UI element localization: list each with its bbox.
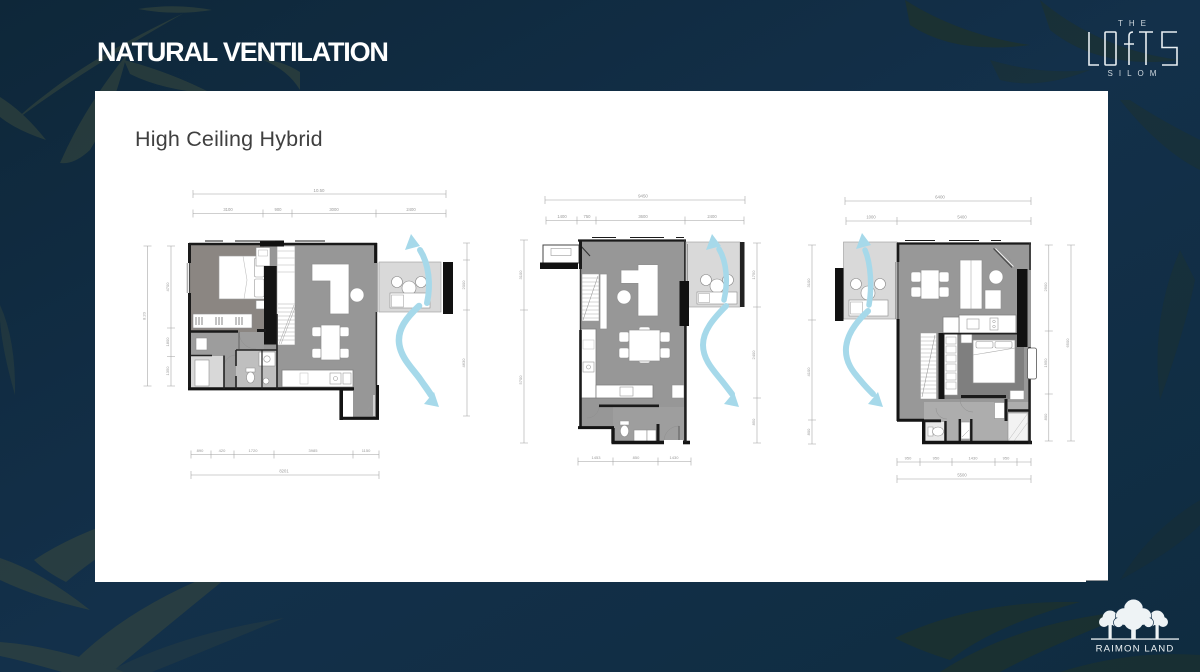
svg-text:2000: 2000 bbox=[461, 280, 466, 290]
svg-text:890: 890 bbox=[197, 448, 204, 453]
svg-text:2400: 2400 bbox=[707, 214, 717, 219]
svg-text:6500: 6500 bbox=[1065, 338, 1070, 348]
svg-text:3100: 3100 bbox=[223, 207, 233, 212]
svg-text:5700: 5700 bbox=[518, 375, 523, 385]
svg-text:3100: 3100 bbox=[518, 270, 523, 280]
svg-text:1150: 1150 bbox=[362, 448, 371, 453]
svg-text:2400: 2400 bbox=[406, 207, 416, 212]
svg-text:RAIMON LAND: RAIMON LAND bbox=[1096, 644, 1175, 655]
svg-text:1750: 1750 bbox=[751, 270, 756, 280]
svg-text:5400: 5400 bbox=[957, 215, 967, 220]
svg-text:950: 950 bbox=[1003, 456, 1010, 461]
svg-text:900: 900 bbox=[275, 207, 283, 212]
svg-text:3600: 3600 bbox=[638, 214, 648, 219]
svg-text:1800: 1800 bbox=[165, 337, 170, 347]
svg-text:850: 850 bbox=[633, 455, 640, 460]
svg-text:3000: 3000 bbox=[329, 207, 339, 212]
svg-text:2400: 2400 bbox=[751, 350, 756, 360]
svg-text:2900: 2900 bbox=[1043, 282, 1048, 292]
svg-text:1430: 1430 bbox=[969, 456, 979, 461]
svg-text:SILOM: SILOM bbox=[1108, 69, 1163, 78]
svg-text:800: 800 bbox=[806, 428, 811, 435]
svg-text:4100: 4100 bbox=[806, 367, 811, 377]
svg-text:1400: 1400 bbox=[557, 214, 567, 219]
svg-text:1000: 1000 bbox=[866, 215, 876, 220]
svg-text:1453: 1453 bbox=[592, 455, 602, 460]
svg-text:6400: 6400 bbox=[935, 195, 945, 200]
svg-text:950: 950 bbox=[905, 456, 912, 461]
svg-text:1430: 1430 bbox=[670, 455, 680, 460]
svg-text:8.20: 8.20 bbox=[142, 311, 147, 320]
svg-text:4700: 4700 bbox=[165, 282, 170, 292]
svg-text:5500: 5500 bbox=[957, 473, 967, 478]
svg-text:3100: 3100 bbox=[806, 278, 811, 288]
svg-text:750: 750 bbox=[584, 214, 592, 219]
svg-text:9450: 9450 bbox=[638, 194, 648, 199]
svg-text:4630: 4630 bbox=[461, 358, 466, 368]
svg-text:1950: 1950 bbox=[1043, 358, 1048, 368]
svg-text:420: 420 bbox=[219, 448, 226, 453]
svg-text:THE: THE bbox=[1118, 19, 1152, 28]
svg-text:1350: 1350 bbox=[165, 366, 170, 376]
svg-text:3985: 3985 bbox=[309, 448, 319, 453]
svg-text:800: 800 bbox=[1043, 413, 1048, 420]
svg-text:850: 850 bbox=[751, 418, 756, 425]
svg-text:8201: 8201 bbox=[279, 469, 289, 474]
svg-text:950: 950 bbox=[933, 456, 940, 461]
svg-text:10.50: 10.50 bbox=[314, 188, 326, 193]
svg-text:1720: 1720 bbox=[249, 448, 259, 453]
